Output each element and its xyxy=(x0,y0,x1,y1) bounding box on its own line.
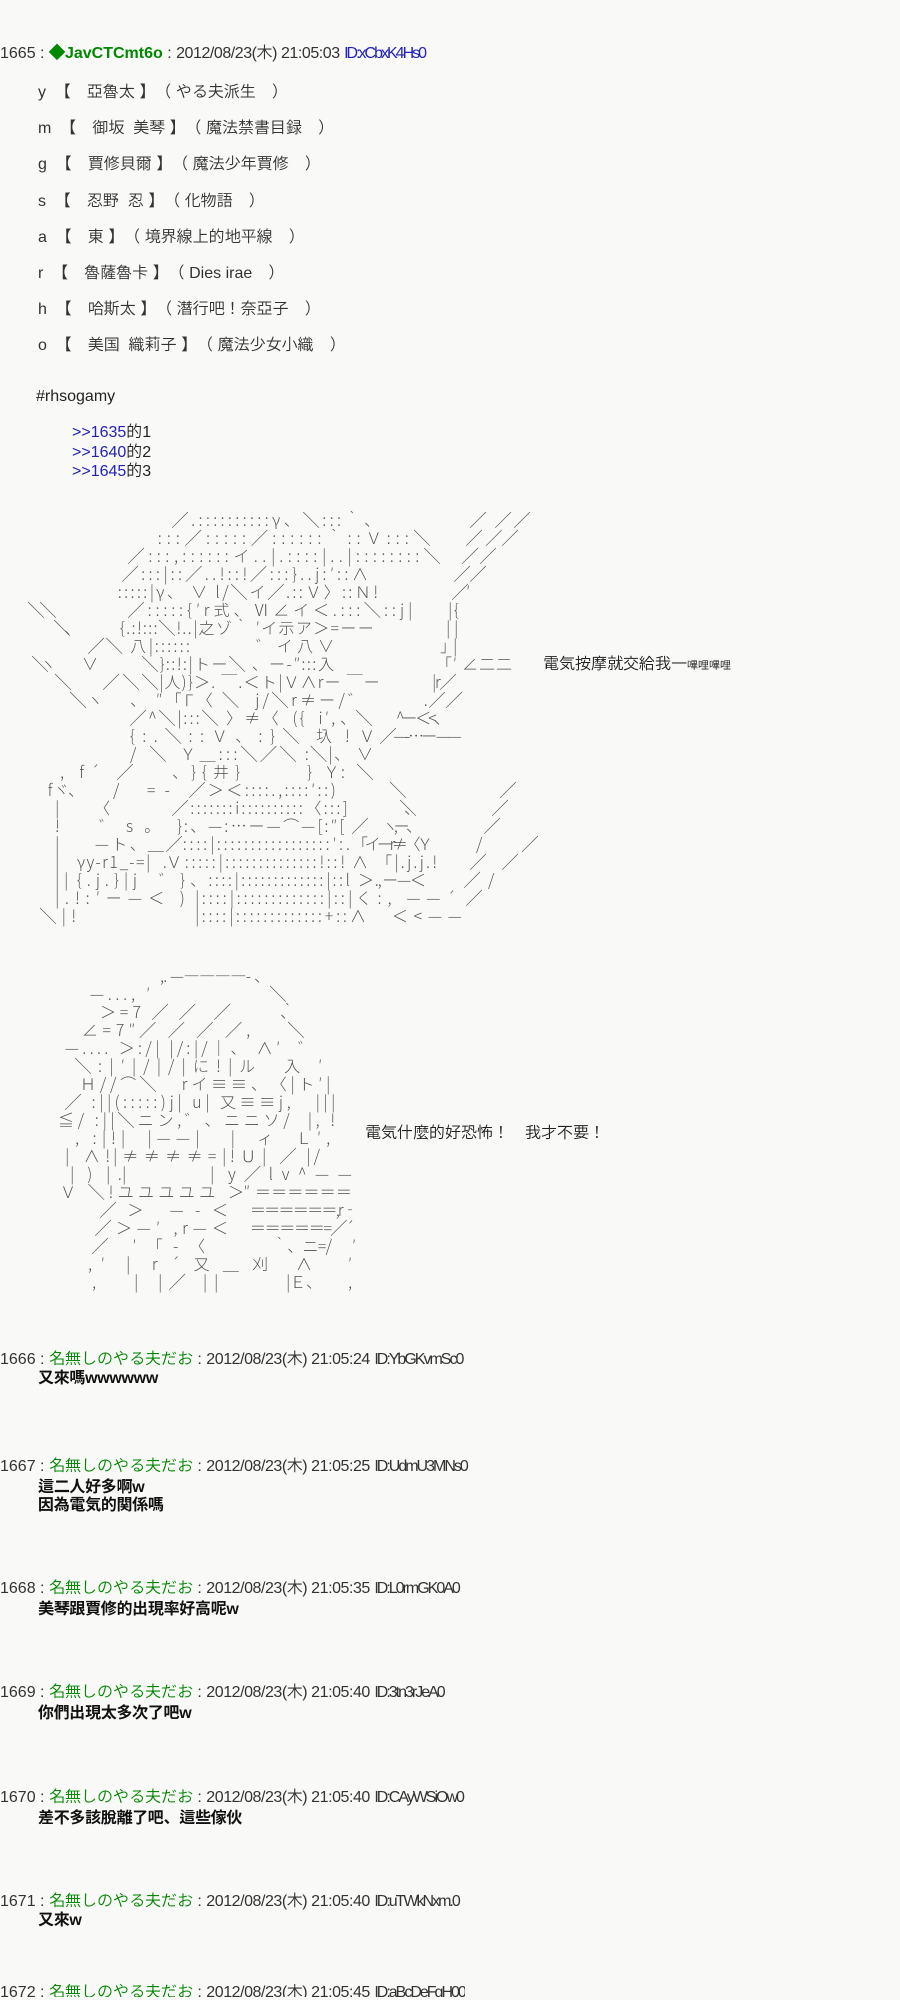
svg-text:╱^╲|:::╲ 〉≠〈 ({ i′,: ╱^╲|:::╲ 〉≠〈 ({ i′, xyxy=(130,705,335,729)
svg-text:゛: ゛ xyxy=(298,1035,314,1059)
svg-text:, |: , | xyxy=(92,1269,138,1293)
svg-text:╲╲: ╲╲ xyxy=(28,597,56,621)
svg-text:╱—-…ー ——: ╱—-…ー —— xyxy=(380,723,462,747)
svg-text:＜<——: ＜<—— xyxy=(392,903,462,927)
svg-text:╱: ╱ xyxy=(466,885,482,909)
svg-text:╲ヽ: ╲ヽ xyxy=(32,651,56,675)
svg-text:、: 、 xyxy=(172,759,188,783)
svg-text:╱: ╱ xyxy=(502,849,518,873)
svg-text:∨: ∨ xyxy=(82,651,98,675)
svg-text:′: ′ xyxy=(352,1233,356,1257)
svg-text:/: / xyxy=(488,867,495,891)
svg-text:╱: ╱ xyxy=(117,759,133,783)
svg-text:╲ヽ: ╲ヽ xyxy=(70,687,103,711)
svg-text:╲: ╲ xyxy=(357,759,373,783)
svg-text:╱: ╱ xyxy=(522,831,538,855)
svg-text:,. —――――- 、: ,. —――――- 、 xyxy=(160,963,270,987)
svg-text:╱: ╱ xyxy=(484,813,500,837)
svg-text:f ヾ、: f ヾ、 xyxy=(48,777,84,801)
svg-text:＞″: ＞″ xyxy=(228,1179,250,1203)
svg-text:╲: ╲ xyxy=(55,669,71,693)
svg-text:/ ╲: / ╲ xyxy=(130,741,166,765)
svg-text:/: / xyxy=(113,777,120,801)
svg-text:╲、: ╲、 xyxy=(54,615,80,639)
svg-text:,: , xyxy=(348,1269,352,1293)
svg-text:=-: =- xyxy=(147,777,170,801)
svg-text:|Ｅ、: |Ｅ、 xyxy=(286,1269,322,1293)
